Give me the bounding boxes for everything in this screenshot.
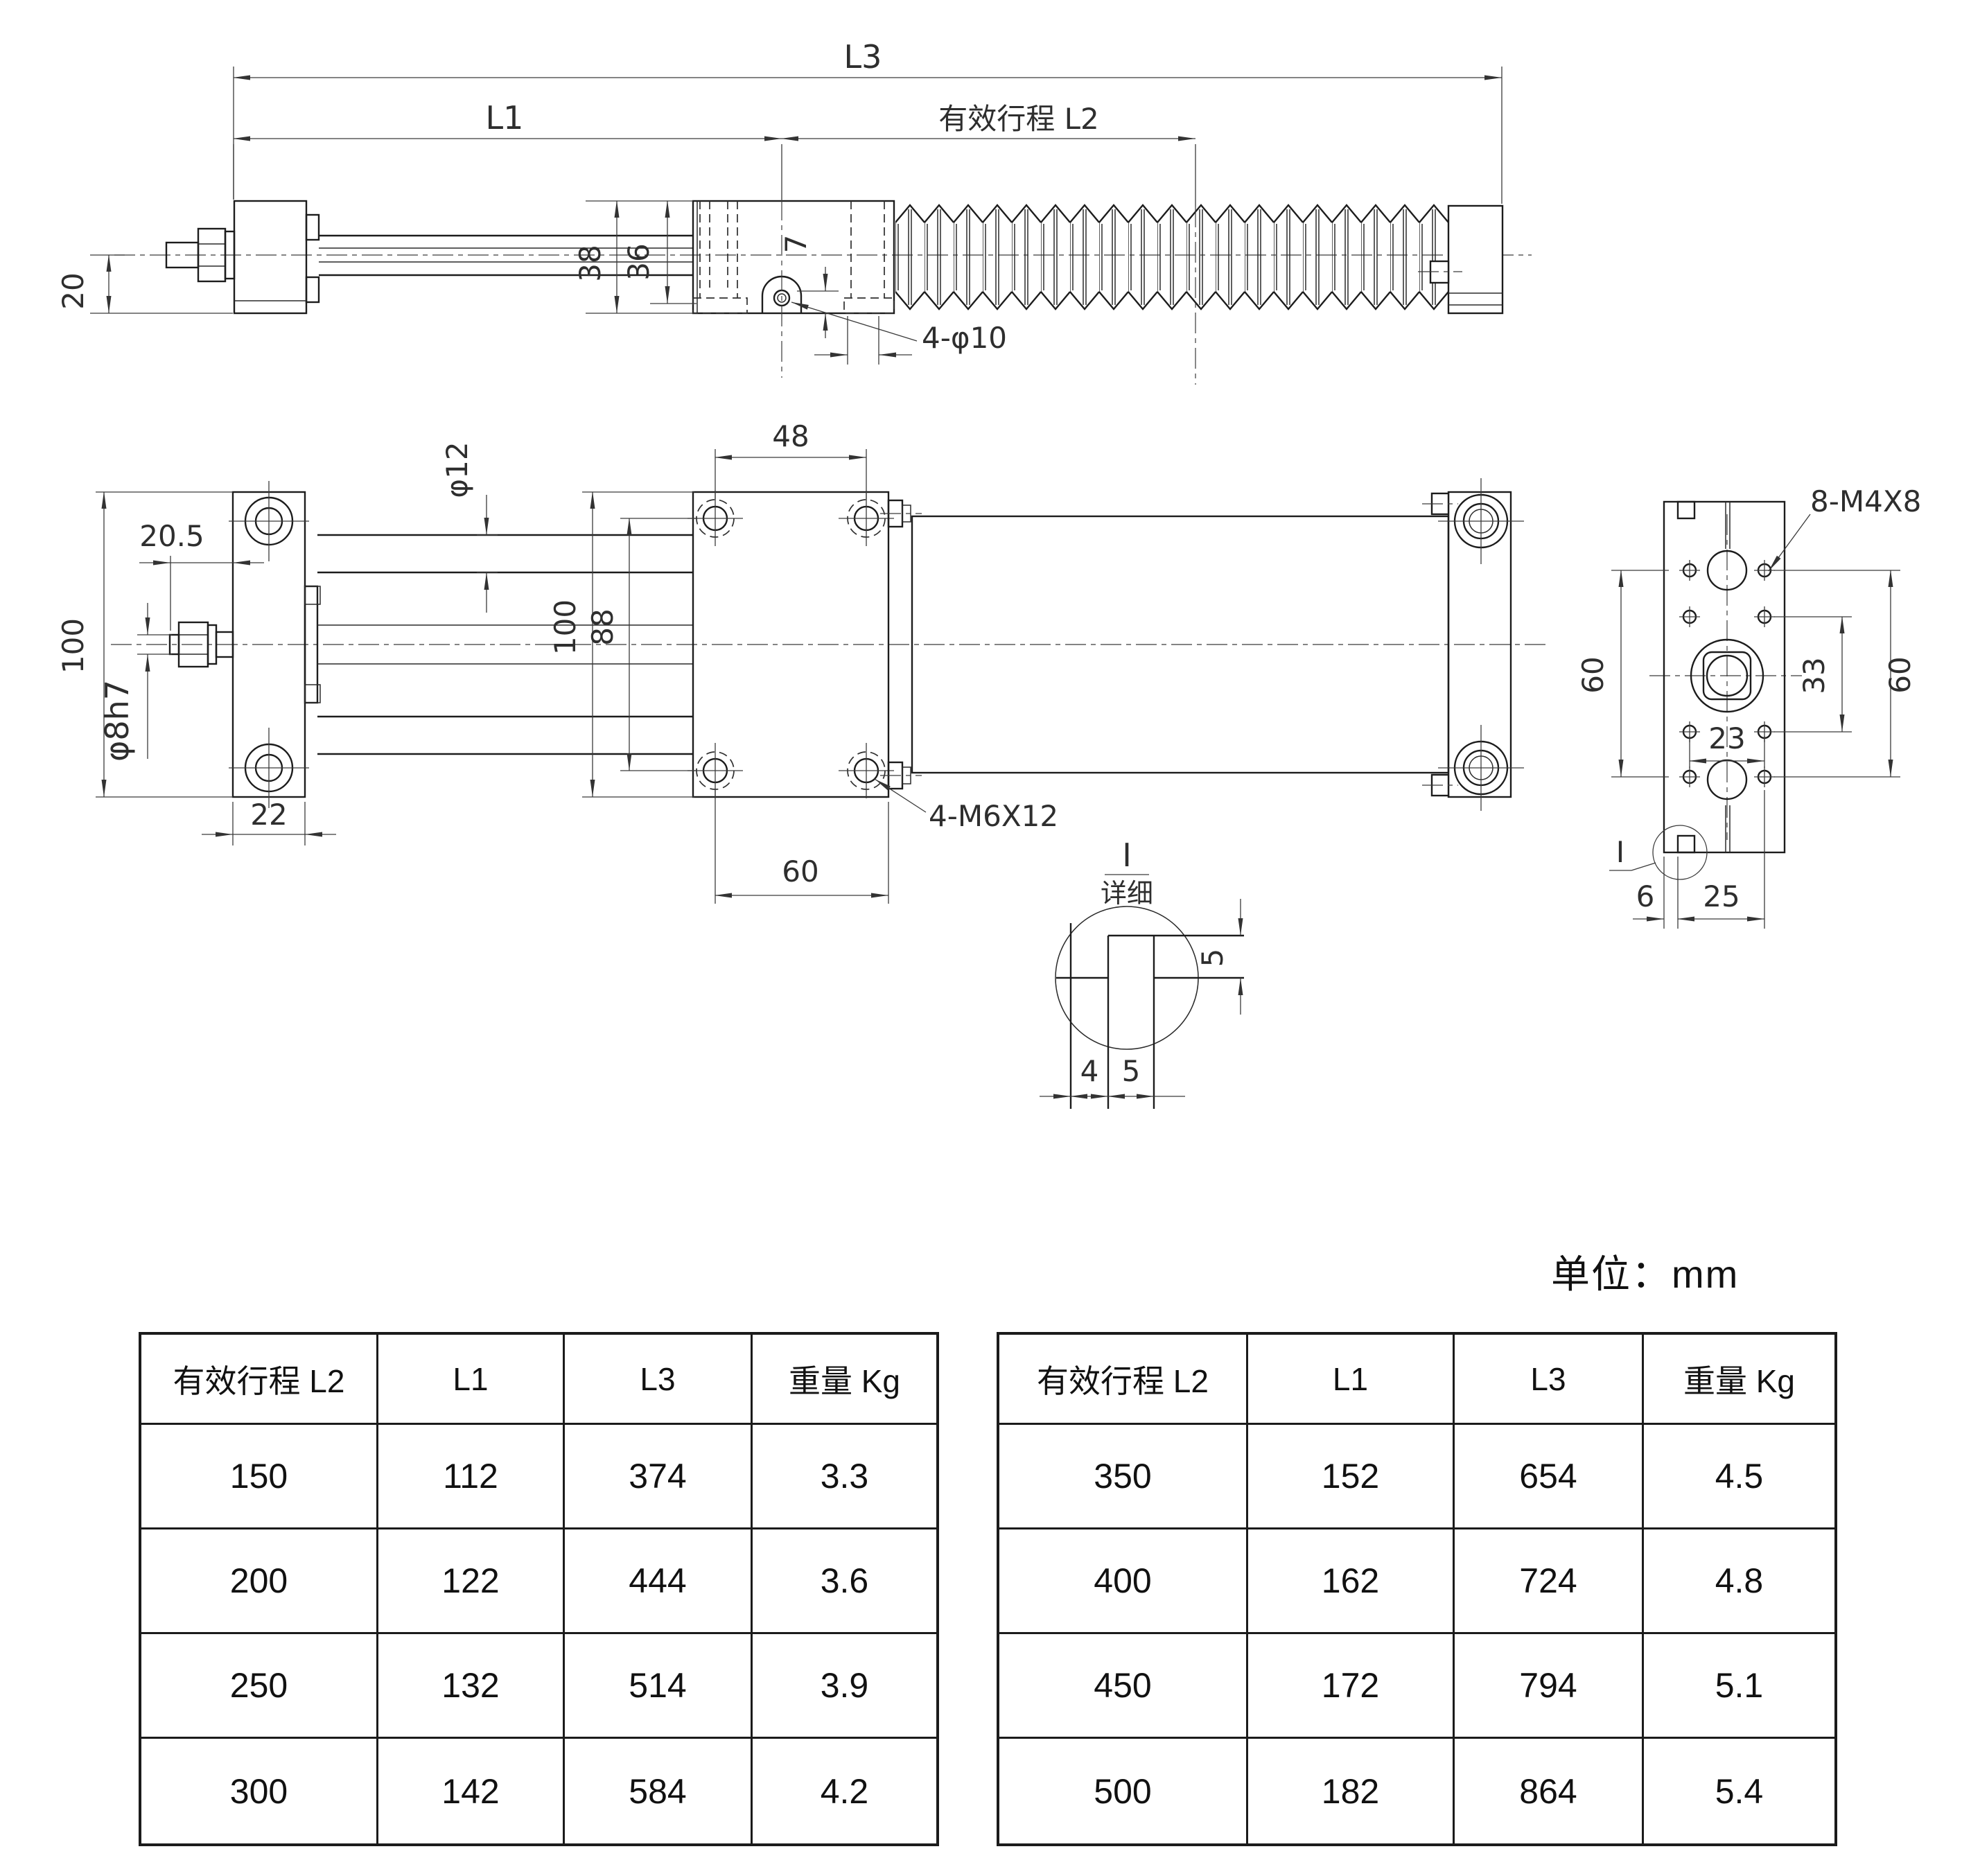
- cell: 5.4: [1644, 1739, 1834, 1843]
- dim-48: 48: [715, 419, 866, 500]
- side-mount-plate: [234, 201, 319, 313]
- cell: 450: [999, 1634, 1248, 1739]
- dim-phi12: φ12: [440, 441, 498, 613]
- dim-88-label: 88: [586, 608, 620, 645]
- dim-6: 6: [1633, 857, 1678, 929]
- dim-4-5-bottom: 4 5: [1040, 1054, 1185, 1096]
- dim-25: 25: [1678, 790, 1764, 929]
- col-header-stroke: 有效行程 L2: [999, 1335, 1248, 1425]
- dim-8m4x8-label: 8-M4X8: [1810, 484, 1921, 518]
- cell: 132: [378, 1634, 565, 1739]
- cell: 5.1: [1644, 1634, 1834, 1739]
- dim-5b-label: 5: [1122, 1054, 1141, 1088]
- cell: 152: [1248, 1425, 1455, 1529]
- cell: 374: [565, 1425, 753, 1529]
- dim-23: 23: [1690, 721, 1764, 768]
- dim-l2-label: 有效行程 L2: [938, 102, 1098, 136]
- side-bellows: [895, 204, 1448, 310]
- cell: 3.9: [753, 1634, 936, 1739]
- dim-5-vertical: 5: [1195, 899, 1241, 1015]
- detail-ref: I: [1609, 835, 1656, 870]
- detail-ref-label: I: [1616, 835, 1624, 869]
- dim-100-plate-label: 100: [56, 618, 90, 674]
- dim-60-left-label: 60: [1576, 656, 1610, 693]
- cell: 142: [378, 1739, 565, 1843]
- dim-48-label: 48: [772, 419, 809, 453]
- cell: 350: [999, 1425, 1248, 1529]
- col-header-l1: L1: [1248, 1335, 1455, 1425]
- cell: 4.5: [1644, 1425, 1834, 1529]
- cell: 172: [1248, 1634, 1455, 1739]
- col-header-stroke: 有效行程 L2: [141, 1335, 378, 1425]
- cell: 3.3: [753, 1425, 936, 1529]
- dim-l3: L3: [234, 38, 1502, 204]
- col-header-l3: L3: [565, 1335, 753, 1425]
- dim-33-label: 33: [1797, 657, 1831, 694]
- dim-5v-label: 5: [1195, 949, 1229, 967]
- cell: 300: [141, 1739, 378, 1843]
- cell: 150: [141, 1425, 378, 1529]
- cell: 514: [565, 1634, 753, 1739]
- col-header-l3: L3: [1455, 1335, 1644, 1425]
- cell: 112: [378, 1425, 565, 1529]
- cell: 4.2: [753, 1739, 936, 1843]
- dim-20: 20: [56, 255, 233, 313]
- dim-22-label: 22: [250, 798, 287, 832]
- dim-22: 22: [202, 798, 336, 845]
- dim-7: 7: [779, 235, 839, 338]
- dim-36-label: 36: [622, 243, 656, 280]
- dim-phi12-label: φ12: [440, 441, 474, 498]
- dim-25-label: 25: [1703, 879, 1740, 913]
- dim-l1-label: L1: [486, 99, 524, 137]
- dim-8-m4x8: 8-M4X8: [1769, 484, 1921, 571]
- cell: 4.8: [1644, 1529, 1834, 1634]
- col-header-weight: 重量 Kg: [1644, 1335, 1834, 1425]
- dim-23-label: 23: [1708, 721, 1745, 755]
- cell: 3.6: [753, 1529, 936, 1634]
- cell: 162: [1248, 1529, 1455, 1634]
- side-view: L3 L1 有效行程 L2 20 38: [56, 38, 1532, 385]
- dim-phi8h7: φ8h7: [98, 603, 172, 762]
- dim-20-5: 20.5: [139, 519, 264, 631]
- cell: 250: [141, 1634, 378, 1739]
- cell: 444: [565, 1529, 753, 1634]
- dim-38-label: 38: [573, 245, 607, 281]
- dim-4phi10-label: 4-φ10: [922, 321, 1007, 355]
- dim-20-label: 20: [56, 272, 90, 309]
- dim-7-label: 7: [779, 235, 813, 254]
- body-corner-hole: [839, 743, 894, 798]
- dim-4-phi10: 4-φ10: [791, 302, 1007, 365]
- cell: 182: [1248, 1739, 1455, 1843]
- dim-60-right-label: 60: [1883, 656, 1917, 693]
- dim-l3-label: L3: [844, 38, 882, 76]
- dim-60-right: 60: [1774, 570, 1917, 777]
- dimension-table-right: 有效行程 L2 L1 L3 重量 Kg 350 152 654 4.5 400 …: [997, 1332, 1837, 1846]
- detail-view: I 详细 5 4 5: [1040, 836, 1244, 1109]
- cell: 400: [999, 1529, 1248, 1634]
- technical-drawing: L3 L1 有效行程 L2 20 38: [0, 0, 1971, 1178]
- cell: 200: [141, 1529, 378, 1634]
- side-body-block: [693, 201, 894, 313]
- dim-20-5-label: 20.5: [139, 519, 204, 553]
- cell: 122: [378, 1529, 565, 1634]
- col-header-l1: L1: [378, 1335, 565, 1425]
- dim-60-body: 60: [715, 790, 888, 904]
- cell: 500: [999, 1739, 1248, 1843]
- dim-4-label: 4: [1080, 1054, 1099, 1088]
- dim-60-left: 60: [1576, 570, 1669, 777]
- end-view: 8-M4X8 60 60 33 23 I: [1576, 484, 1921, 929]
- dim-phi8h7-label: φ8h7: [98, 680, 136, 762]
- plan-view: 100 20.5 φ8h7 22: [56, 419, 1549, 904]
- dimension-table-left: 有效行程 L2 L1 L3 重量 Kg 150 112 374 3.3 200 …: [139, 1332, 939, 1846]
- cell: 654: [1455, 1425, 1644, 1529]
- dim-4m6x12-label: 4-M6X12: [929, 799, 1058, 833]
- dim-33: 33: [1774, 617, 1852, 732]
- detail-title-label: 详细: [1101, 878, 1153, 909]
- cell: 584: [565, 1739, 753, 1843]
- col-header-weight: 重量 Kg: [753, 1335, 936, 1425]
- unit-note: 单位：mm: [1551, 1243, 1814, 1299]
- detail-title-ref: I: [1122, 836, 1132, 874]
- cell: 864: [1455, 1739, 1644, 1843]
- dim-100-body-label: 100: [548, 599, 582, 655]
- drawing-sheet: L3 L1 有效行程 L2 20 38: [0, 0, 1971, 1876]
- cell: 794: [1455, 1634, 1644, 1739]
- dim-60-body-label: 60: [782, 854, 818, 888]
- dim-36: 36: [622, 201, 697, 304]
- dim-6-label: 6: [1636, 879, 1655, 913]
- dim-l1: L1: [234, 99, 782, 378]
- cell: 724: [1455, 1529, 1644, 1634]
